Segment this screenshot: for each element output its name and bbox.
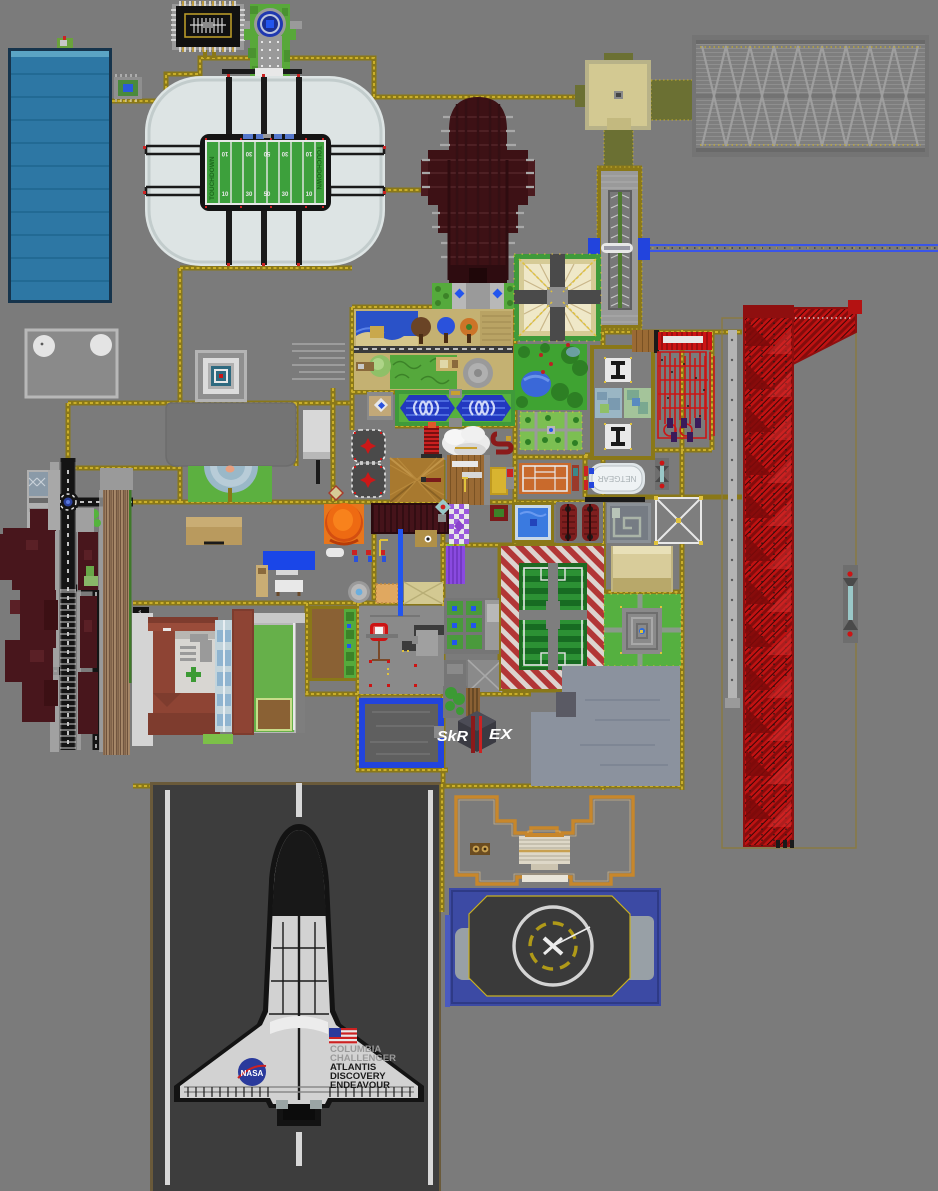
svg-text:30: 30	[246, 192, 253, 198]
svg-text:NETGEAR: NETGEAR	[597, 474, 636, 483]
svg-text:10: 10	[222, 192, 229, 198]
svg-text:EX: EX	[489, 726, 513, 743]
svg-text:10: 10	[305, 150, 312, 156]
svg-text:TOUCHDOWN: TOUCHDOWN	[315, 146, 322, 190]
svg-text:50: 50	[264, 192, 271, 198]
svg-text:10: 10	[306, 192, 313, 198]
svg-text:30: 30	[282, 192, 289, 198]
svg-text:SkR: SkR	[437, 728, 468, 745]
svg-text:50: 50	[263, 150, 270, 156]
svg-text:TOUCHDOWN: TOUCHDOWN	[209, 156, 216, 200]
svg-text:NASA: NASA	[241, 1069, 264, 1078]
svg-text:10: 10	[221, 150, 228, 156]
svg-text:30: 30	[245, 150, 252, 156]
svg-text:ENDEAVOUR: ENDEAVOUR	[330, 1080, 390, 1091]
svg-text:30: 30	[281, 150, 288, 156]
